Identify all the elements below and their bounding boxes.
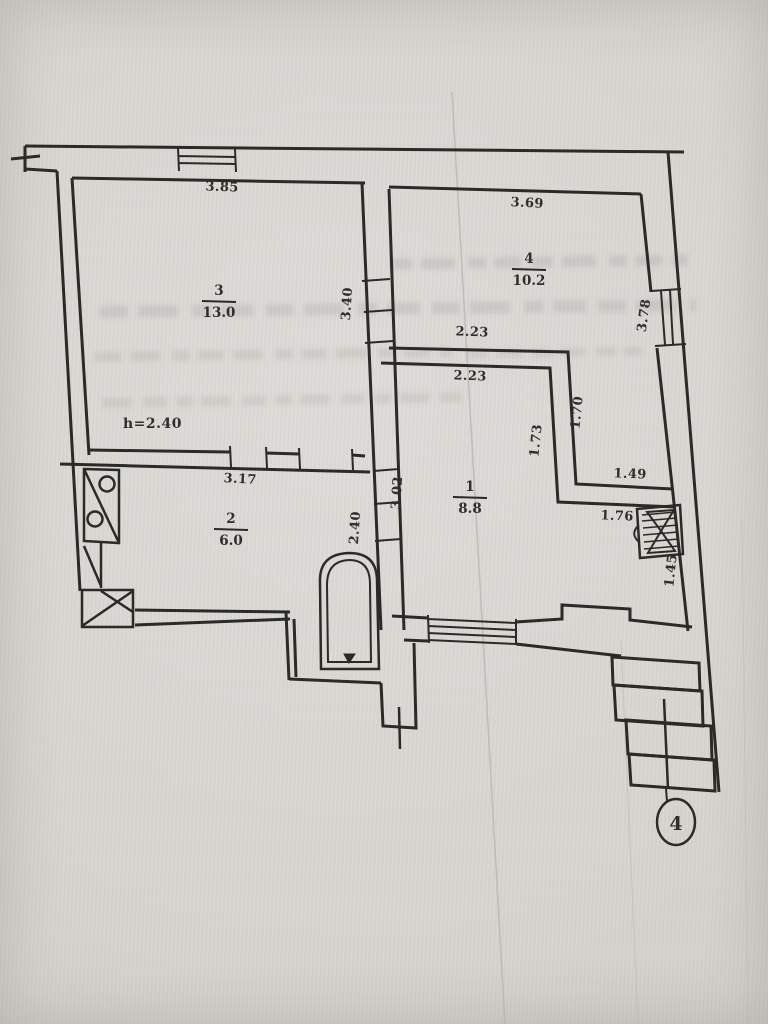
bottom-window [428, 615, 516, 645]
paper-creases [452, 92, 748, 1024]
central-partition [362, 183, 404, 630]
stove-burner-circle [88, 512, 103, 527]
bathtub-inner [327, 560, 371, 662]
room-area: 10.2 [513, 273, 546, 289]
fraction-bar [453, 497, 487, 498]
dimension-label: 3.78 [635, 298, 654, 333]
fraction-bar [214, 529, 248, 530]
ghost-text-row [102, 397, 462, 403]
stair-end-tick [666, 789, 667, 801]
room-area: 6.0 [219, 533, 243, 549]
crease-line [621, 640, 638, 1024]
dimension-label: 3.17 [223, 471, 257, 488]
room-number: 4 [524, 251, 533, 267]
top-outer-wall [25, 146, 684, 152]
bath-niche-left-wall [286, 612, 296, 680]
fraction-bar [512, 269, 546, 270]
dimension-label: 3.85 [205, 179, 239, 195]
ghost-text-row [95, 352, 452, 357]
dimension-label: 1.76 [600, 508, 634, 524]
stove-burner-circle [100, 477, 115, 492]
survey-tick [11, 156, 40, 159]
dimension-label: 2.23 [453, 368, 487, 384]
door-jambs [230, 446, 353, 470]
ghost-text-row [390, 260, 688, 264]
room-1: 18.8 [453, 479, 487, 517]
triangle-fixture [84, 543, 101, 588]
ceiling-height-label: h=2.40 [123, 416, 182, 432]
survey-tick [399, 707, 400, 749]
dimension-label: 1.73 [527, 423, 545, 458]
top-inner-stub [25, 169, 57, 171]
partition-right-line [389, 189, 404, 630]
wall-upper-line [88, 450, 365, 456]
crease-line [742, 520, 748, 1024]
dimension-label: 3.40 [339, 287, 356, 321]
room-2: 26.0 [214, 511, 248, 549]
floor-marker: 4 [657, 799, 695, 845]
dimension-label: 3.02 [389, 476, 406, 510]
left-porch-fixtures [82, 469, 133, 627]
dimension-labels: 3.853.403.692.232.233.781.701.731.491.76… [205, 179, 680, 588]
top-window [178, 148, 236, 172]
vent-hourglass-icon [647, 510, 675, 553]
room-number: 3 [214, 283, 223, 299]
dimension-label: 1.70 [568, 395, 586, 430]
room4-right-inner [641, 194, 651, 292]
scanned-floor-plan-page: 4 h=2.40 3.853.403.692.232.233.781.701.7… [0, 0, 768, 1024]
dimension-label: 2.40 [347, 511, 364, 545]
dimension-label: 2.23 [455, 324, 489, 340]
stair-step [629, 754, 715, 791]
ghost-text-row [100, 305, 696, 312]
room3-bottom-wall [60, 446, 370, 472]
dimension-label: 1.45 [662, 553, 680, 588]
room-area: 13.0 [203, 305, 236, 321]
dimension-label: 3.69 [510, 195, 544, 212]
corner-box [82, 590, 133, 627]
room-number: 2 [226, 511, 235, 527]
bathtub [320, 553, 379, 669]
wall-upper-line [392, 605, 692, 627]
room2-bottom-wall [135, 610, 290, 625]
right-outer-wall [668, 152, 719, 792]
room4-top-inner [389, 187, 641, 194]
floor-marker-label: 4 [669, 813, 682, 835]
fraction-bar [202, 301, 236, 302]
floor-plan-svg: 4 h=2.40 3.853.403.692.232.233.781.701.7… [0, 0, 768, 1024]
room-3: 313.0 [202, 283, 236, 321]
room2-bottom-structure [135, 610, 416, 749]
wall-lower-line [404, 640, 621, 656]
room-area: 8.8 [458, 501, 482, 517]
niche-walls [381, 348, 676, 507]
room-number: 1 [465, 479, 474, 495]
bath-niche-floor [289, 679, 381, 683]
crease-line [452, 92, 505, 1024]
dimension-label: 1.49 [613, 466, 647, 482]
room1-bottom-wall [392, 605, 692, 656]
room3-left-inner [72, 178, 89, 455]
stair-center-line [664, 699, 668, 789]
